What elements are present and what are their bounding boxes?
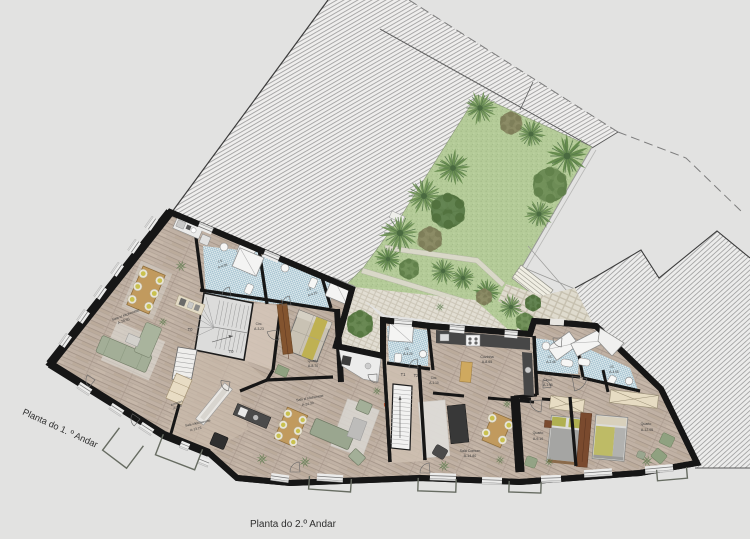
svg-text:I.S.: I.S. bbox=[610, 365, 615, 369]
svg-text:T0: T0 bbox=[229, 349, 235, 354]
svg-text:Sala Comum: Sala Comum bbox=[460, 449, 481, 453]
svg-text:Circul.: Circul. bbox=[543, 378, 552, 382]
svg-text:Planta do 2.º Andar: Planta do 2.º Andar bbox=[250, 519, 337, 530]
svg-text:A-1.95: A-1.95 bbox=[543, 383, 553, 387]
svg-text:I.S.: I.S. bbox=[405, 347, 410, 351]
svg-text:A-1.10: A-1.10 bbox=[429, 381, 439, 385]
svg-text:Circ.: Circ. bbox=[431, 376, 438, 380]
svg-text:Quarto: Quarto bbox=[641, 422, 652, 426]
svg-text:T0: T0 bbox=[188, 327, 194, 332]
svg-text:T2: T2 bbox=[414, 373, 420, 378]
svg-text:A-12.05: A-12.05 bbox=[641, 428, 653, 432]
svg-text:I.S.: I.S. bbox=[548, 355, 553, 359]
svg-text:A-9.10: A-9.10 bbox=[533, 437, 543, 441]
svg-text:A-14.80: A-14.80 bbox=[464, 454, 477, 458]
svg-text:A-3.23: A-3.23 bbox=[254, 327, 264, 331]
svg-text:A-2.46: A-2.46 bbox=[546, 360, 556, 364]
svg-text:T1: T1 bbox=[401, 372, 407, 377]
svg-text:A-8.65: A-8.65 bbox=[482, 360, 493, 364]
svg-text:Cozinha: Cozinha bbox=[480, 355, 493, 359]
svg-text:Circ.: Circ. bbox=[256, 322, 263, 326]
svg-text:A-8.70: A-8.70 bbox=[308, 364, 318, 368]
svg-text:A-4.20: A-4.20 bbox=[403, 352, 413, 356]
svg-text:Quarto: Quarto bbox=[533, 431, 544, 435]
svg-text:Quarto: Quarto bbox=[308, 359, 319, 363]
svg-text:A-4.55: A-4.55 bbox=[609, 370, 619, 374]
